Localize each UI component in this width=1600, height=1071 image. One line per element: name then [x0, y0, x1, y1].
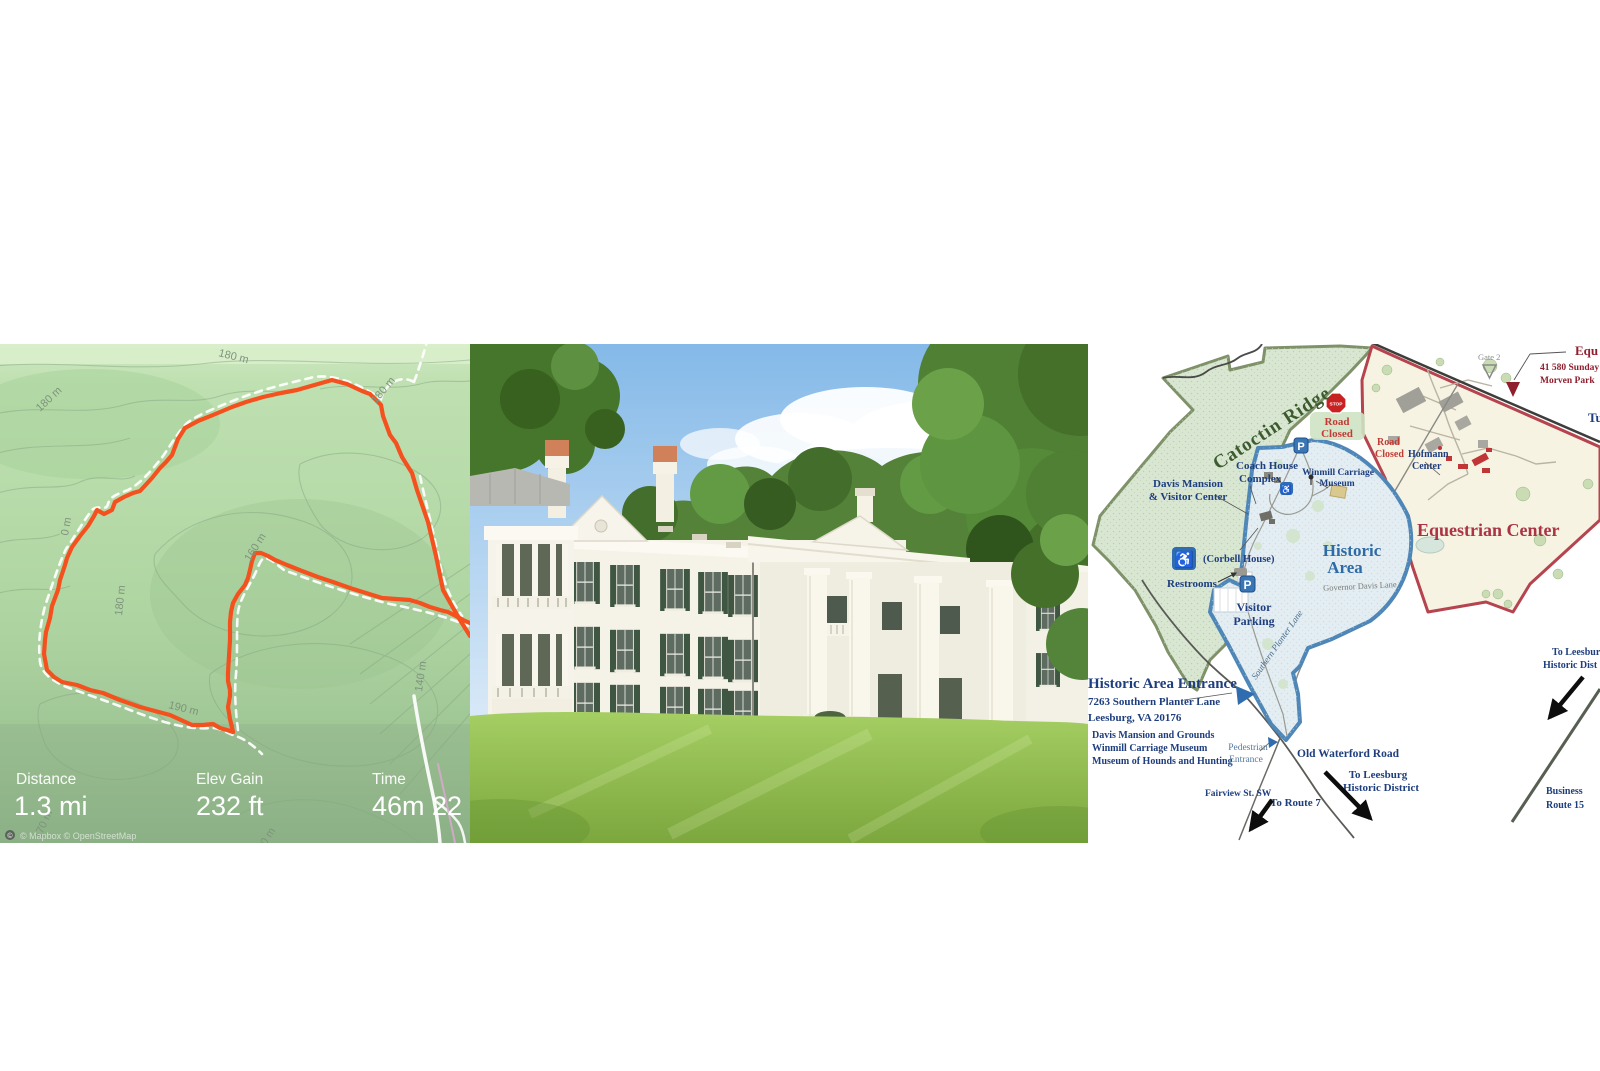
mansion-photo[interactable] [470, 344, 1088, 843]
wheelchair-icon [1280, 482, 1293, 495]
road-closed-badge [1310, 412, 1365, 440]
property-map-panel[interactable]: STOP Road Closed Road Closed Hofmann Cen… [1088, 344, 1600, 843]
trail-map-panel[interactable]: 180 m 180 m 180 m 160 m 180 m 0 m 190 m … [0, 344, 470, 843]
image-collage-strip: 180 m 180 m 180 m 160 m 180 m 0 m 190 m … [0, 344, 1600, 843]
screenshot-canvas: 180 m 180 m 180 m 160 m 180 m 0 m 190 m … [0, 0, 1600, 1071]
pond [1416, 537, 1444, 553]
wheelchair-icon [1172, 547, 1196, 570]
parking-icon [1240, 576, 1255, 592]
stop-sign-icon [1326, 393, 1346, 413]
porch-tower [484, 526, 578, 726]
attribution-icon[interactable] [5, 830, 15, 840]
parking-icon [1294, 438, 1308, 453]
round-window [595, 520, 607, 532]
